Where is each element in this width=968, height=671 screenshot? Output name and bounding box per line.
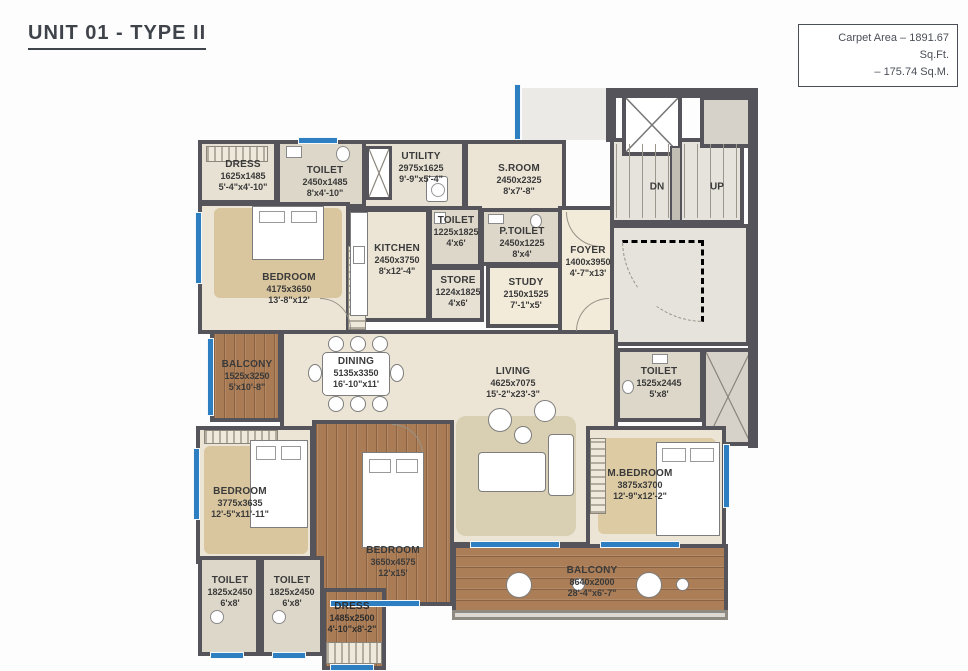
room-dim-ft: 7'-1"x5' — [503, 300, 548, 311]
balcony-table — [676, 578, 689, 591]
utility-duct-cross-icon — [369, 149, 389, 197]
label-toilet-bottom2: TOILET 1825x2450 6'x8' — [269, 575, 314, 609]
label-dress-bottom: DRESS 1485x2500 4'-10"x8'-2" — [328, 601, 377, 635]
room-dim-ft: 12'-9"x12'-2" — [607, 491, 672, 502]
wc-toilet-bottom1 — [210, 610, 224, 624]
balcony-chair — [506, 572, 532, 598]
room-dim-ft: 12'-5"x11'-11" — [211, 509, 269, 520]
room-name: FOYER — [565, 245, 610, 257]
lounge-chair — [488, 408, 512, 432]
room-dim-ft: 4'x6' — [433, 238, 478, 249]
room-name: TOILET — [207, 575, 252, 587]
bed-bedroom-topleft — [252, 206, 324, 260]
window-entry — [514, 84, 521, 140]
stair-down-label: DN — [650, 182, 664, 193]
room-dim-mm: 3775x3635 — [211, 498, 269, 509]
dining-chair — [390, 364, 404, 382]
room-dim-ft: 8'x7'-8" — [496, 186, 541, 197]
room-name: STORE — [435, 275, 480, 287]
coffee-table — [514, 426, 532, 444]
label-master-bedroom: M.BEDROOM 3875x3700 12'-9"x12'-2" — [607, 468, 672, 502]
room-dim-mm: 1625x1485 — [219, 171, 268, 182]
page-title: UNIT 01 - TYPE II — [28, 22, 206, 50]
room-name: TOILET — [269, 575, 314, 587]
room-dim-mm: 4625x7075 — [486, 378, 540, 389]
label-toilet-bottom1: TOILET 1825x2450 6'x8' — [207, 575, 252, 609]
label-utility: UTILITY 2975x1625 9'-9"x5'-4" — [398, 151, 443, 185]
dining-chair — [328, 396, 344, 412]
room-dim-mm: 8640x2000 — [567, 577, 618, 588]
pillow — [291, 211, 317, 223]
label-living: LIVING 4625x7075 15'-2"x23'-3" — [486, 366, 540, 400]
room-name: UTILITY — [398, 151, 443, 163]
room-name: BALCONY — [567, 565, 618, 577]
window-toilet-bottom1 — [210, 652, 244, 659]
utility-duct — [366, 146, 392, 200]
room-dim-mm: 2975x1625 — [398, 163, 443, 174]
room-name: BEDROOM — [366, 545, 420, 557]
label-study: STUDY 2150x1525 7'-1"x5' — [503, 277, 548, 311]
room-name: LIVING — [486, 366, 540, 378]
room-dim-ft: 8'x4' — [499, 249, 544, 260]
window-toilet-bottom2 — [272, 652, 306, 659]
room-dim-ft: 9'-9"x5'-4" — [398, 174, 443, 185]
label-bedroom-topleft: BEDROOM 4175x3650 13'-8"x12' — [262, 272, 316, 306]
wall-top-right — [606, 88, 758, 98]
room-name: P.TOILET — [499, 226, 544, 238]
room-name: BEDROOM — [211, 486, 269, 498]
room-name: S.ROOM — [496, 163, 541, 175]
room-dim-ft: 5'x8' — [636, 389, 681, 400]
label-kitchen: KITCHEN 2450x3750 8'x12'-4" — [374, 243, 420, 277]
slider-living-to-balcony — [470, 541, 560, 548]
wardrobe-dress-bottom — [326, 642, 382, 664]
room-dim-mm: 2150x1525 — [503, 289, 548, 300]
pillow — [259, 211, 285, 223]
room-dim-mm: 3875x3700 — [607, 480, 672, 491]
bed-bedroom-middle — [362, 452, 424, 548]
balcony-railing — [452, 610, 728, 620]
room-dim-mm: 2450x2325 — [496, 175, 541, 186]
label-store: STORE 1224x1825 4'x6' — [435, 275, 480, 309]
room-dim-mm: 1225x1825 — [433, 227, 478, 238]
window-bedroom-topleft — [195, 212, 202, 284]
slider-master-to-balcony — [600, 541, 680, 548]
room-dim-ft: 15'-2"x23'-3" — [486, 389, 540, 400]
room-dim-ft: 4'x6' — [435, 298, 480, 309]
room-dim-mm: 2450x3750 — [374, 255, 420, 266]
wall-right — [748, 88, 758, 448]
wc-toilet-top — [336, 146, 350, 162]
stair-rail — [670, 146, 682, 222]
wc-toilet-bottom2 — [272, 610, 286, 624]
room-dim-mm: 1525x2445 — [636, 378, 681, 389]
sofa-main — [478, 452, 546, 492]
floor-plan-page: UNIT 01 - TYPE II Carpet Area – 1891.67 … — [0, 0, 968, 671]
dining-chair — [350, 396, 366, 412]
wc-toilet-right — [622, 380, 634, 394]
label-ptoilet: P.TOILET 2450x1225 8'x4' — [499, 226, 544, 260]
room-name: DINING — [333, 356, 379, 368]
room-dim-mm: 1825x2450 — [269, 587, 314, 598]
room-name: TOILET — [636, 366, 681, 378]
kitchen-sink — [353, 246, 365, 264]
carpet-area-box: Carpet Area – 1891.67 Sq.Ft. – 175.74 Sq… — [798, 24, 958, 87]
room-name: DRESS — [219, 159, 268, 171]
window-master-bedroom — [723, 444, 730, 508]
washer-door-icon — [431, 183, 445, 197]
room-dim-mm: 5135x3350 — [333, 368, 379, 379]
room-dim-ft: 13'-8"x12' — [262, 295, 316, 306]
basin-ptoilet — [488, 214, 504, 224]
window-balcony-left — [207, 338, 214, 416]
stair-up-label: UP — [710, 182, 724, 193]
room-name: BEDROOM — [262, 272, 316, 284]
room-name: TOILET — [302, 165, 347, 177]
balcony-chair — [636, 572, 662, 598]
room-dim-mm: 1224x1825 — [435, 287, 480, 298]
room-name: STUDY — [503, 277, 548, 289]
room-dim-ft: 5'x10'-8" — [222, 382, 273, 393]
room-dim-mm: 1825x2450 — [207, 587, 252, 598]
room-dim-ft: 4'-10"x8'-2" — [328, 624, 377, 635]
label-bedroom-middle: BEDROOM 3650x4575 12'x15' — [366, 545, 420, 579]
label-dining: DINING 5135x3350 16'-10"x11' — [333, 356, 379, 390]
window-dress-bottom — [330, 664, 374, 671]
label-toilet-top: TOILET 2450x1485 8'x4'-10" — [302, 165, 347, 199]
pillow — [369, 459, 391, 473]
room-dim-mm: 3650x4575 — [366, 557, 420, 568]
dining-chair — [328, 336, 344, 352]
pillow — [281, 446, 301, 460]
room-dim-ft: 8'x4'-10" — [302, 188, 347, 199]
room-dim-ft: 8'x12'-4" — [374, 266, 420, 277]
pillow — [256, 446, 276, 460]
lounge-chair — [534, 400, 556, 422]
room-name: TOILET — [433, 215, 478, 227]
dining-chair — [350, 336, 366, 352]
label-balcony-left: BALCONY 1525x3250 5'x10'-8" — [222, 359, 273, 393]
room-dim-ft: 6'x8' — [269, 598, 314, 609]
pillow — [662, 448, 686, 462]
label-balcony-bottom: BALCONY 8640x2000 28'-4"x6'-7" — [567, 565, 618, 599]
room-dim-ft: 16'-10"x11' — [333, 379, 379, 390]
basin-toilet-right — [652, 354, 668, 364]
window-toilet-top — [298, 137, 338, 144]
dining-chair — [372, 396, 388, 412]
label-dress-top: DRESS 1625x1485 5'-4"x4'-10" — [219, 159, 268, 193]
dining-chair — [308, 364, 322, 382]
room-dim-mm: 2450x1485 — [302, 177, 347, 188]
label-servant-room: S.ROOM 2450x2325 8'x7'-8" — [496, 163, 541, 197]
room-dim-ft: 6'x8' — [207, 598, 252, 609]
room-dim-ft: 4'-7"x13' — [565, 268, 610, 279]
room-dim-ft: 5'-4"x4'-10" — [219, 182, 268, 193]
label-toilet-right: TOILET 1525x2445 5'x8' — [636, 366, 681, 400]
entry-lobby-floor — [522, 88, 608, 140]
pillow — [690, 448, 714, 462]
sofa-side — [548, 434, 574, 496]
label-foyer: FOYER 1400x3950 4'-7"x13' — [565, 245, 610, 279]
room-name: BALCONY — [222, 359, 273, 371]
dining-chair — [372, 336, 388, 352]
service-wall-block — [700, 96, 754, 148]
room-dim-mm: 1400x3950 — [565, 257, 610, 268]
label-toilet-mid: TOILET 1225x1825 4'x6' — [433, 215, 478, 249]
room-dim-mm: 4175x3650 — [262, 284, 316, 295]
room-dim-mm: 1525x3250 — [222, 371, 273, 382]
window-bedroom-bottomleft — [193, 448, 200, 520]
basin-toilet-top — [286, 146, 302, 158]
kitchen-counter — [350, 212, 368, 316]
label-bedroom-bottomleft: BEDROOM 3775x3635 12'-5"x11'-11" — [211, 486, 269, 520]
wall-lift-left — [606, 88, 616, 142]
carpet-area-sqm: – 175.74 Sq.M. — [807, 64, 949, 81]
pillow — [396, 459, 418, 473]
room-dim-ft: 12'x15' — [366, 568, 420, 579]
room-name: DRESS — [328, 601, 377, 613]
room-dim-mm: 2450x1225 — [499, 238, 544, 249]
room-name: KITCHEN — [374, 243, 420, 255]
carpet-area-sqft: Carpet Area – 1891.67 Sq.Ft. — [807, 30, 949, 64]
room-name: M.BEDROOM — [607, 468, 672, 480]
wardrobe-master-bedroom — [590, 438, 606, 514]
room-dim-ft: 28'-4"x6'-7" — [567, 588, 618, 599]
room-dim-mm: 1485x2500 — [328, 613, 377, 624]
